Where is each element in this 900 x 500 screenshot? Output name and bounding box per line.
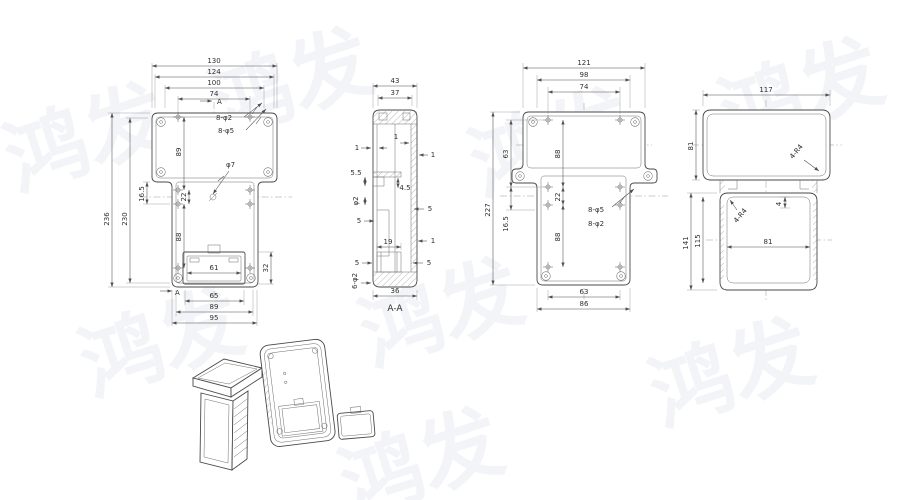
side-step-lines bbox=[720, 180, 817, 193]
dim-115: 115 bbox=[694, 234, 702, 247]
dim-100: 100 bbox=[207, 79, 220, 87]
dim-98: 98 bbox=[580, 71, 589, 79]
side-step-hatch-left bbox=[720, 180, 725, 192]
dim-16-5-back: 16.5 bbox=[502, 216, 510, 232]
side-upper-outline bbox=[703, 110, 830, 180]
dim-wall-1d: 1 bbox=[431, 237, 435, 245]
dim-63-bottom: 63 bbox=[580, 288, 589, 296]
dim-89-bottom: 89 bbox=[210, 303, 219, 311]
dim-37: 37 bbox=[391, 89, 400, 97]
dim-36: 36 bbox=[391, 287, 400, 295]
dim-4: 4 bbox=[775, 201, 783, 206]
side-view: 117 81 141 115 81 4 4-R4 4-R4 bbox=[682, 86, 842, 300]
dim-43: 43 bbox=[391, 77, 400, 85]
dim-89-vert: 89 bbox=[175, 148, 183, 157]
callout-phi7: φ7 bbox=[226, 161, 235, 169]
small-cover-iso bbox=[337, 405, 376, 439]
assembled-enclosure-iso bbox=[193, 359, 262, 470]
callout-8-phi2: 8-φ2 bbox=[216, 114, 232, 122]
dim-88b: 88 bbox=[554, 233, 562, 242]
dim-63-left: 63 bbox=[502, 150, 510, 159]
dim-6-phi2: 6-φ2 bbox=[351, 273, 359, 289]
dim-74-back: 74 bbox=[580, 83, 589, 91]
dim-74: 74 bbox=[210, 90, 219, 98]
section-right-wall-hatch bbox=[411, 124, 417, 272]
dim-230: 230 bbox=[121, 212, 129, 225]
section-bottom-hatch bbox=[373, 272, 417, 286]
front-outline bbox=[152, 113, 277, 287]
dim-81-inner: 81 bbox=[764, 238, 773, 246]
dim-4-5: 4.5 bbox=[399, 184, 410, 192]
dim-65: 65 bbox=[210, 292, 219, 300]
engineering-drawing: 鸿发 鸿发 鸿发 鸿发 鸿发 鸿发 鸿发 鸿发 bbox=[0, 0, 900, 500]
dim-86: 86 bbox=[580, 300, 589, 308]
callout-8-phi2-back: 8-φ2 bbox=[588, 220, 604, 228]
dim-5-5: 5.5 bbox=[350, 169, 361, 177]
dim-81-upper: 81 bbox=[687, 142, 695, 151]
dim-236: 236 bbox=[103, 212, 111, 226]
dim-16-5: 16.5 bbox=[138, 186, 146, 202]
watermark-text: 鸿发 bbox=[639, 303, 824, 444]
dim-wall-1b: 1 bbox=[394, 133, 398, 141]
side-rib-hatch-left bbox=[720, 202, 724, 280]
callout-8-phi5: 8-φ5 bbox=[218, 127, 234, 135]
watermark-text: 鸿发 bbox=[329, 393, 514, 500]
side-step-hatch-right bbox=[812, 180, 817, 192]
dim-130: 130 bbox=[207, 57, 220, 65]
dim-141: 141 bbox=[682, 236, 690, 249]
dim-117: 117 bbox=[759, 86, 772, 94]
dim-wall-1c: 1 bbox=[431, 151, 435, 159]
open-shell-iso bbox=[259, 338, 336, 447]
dim-5d: 5 bbox=[427, 259, 431, 267]
dim-19: 19 bbox=[384, 238, 393, 246]
dim-121: 121 bbox=[577, 59, 590, 67]
section-label-a-top: A bbox=[217, 98, 222, 106]
section-title: A-A bbox=[387, 304, 403, 314]
dim-95: 95 bbox=[210, 314, 219, 322]
section-label-a-bottom: A bbox=[175, 289, 180, 297]
dim-61: 61 bbox=[210, 264, 219, 272]
drawing-page: 鸿发 鸿发 鸿发 鸿发 鸿发 鸿发 鸿发 鸿发 bbox=[0, 0, 900, 500]
dim-22-back: 22 bbox=[554, 193, 562, 202]
dim-124: 124 bbox=[207, 68, 221, 76]
dim-88-vert: 88 bbox=[175, 233, 183, 242]
dim-5b: 5 bbox=[357, 217, 361, 225]
dim-88a: 88 bbox=[554, 150, 562, 159]
callout-8-phi5-back: 8-φ5 bbox=[588, 206, 604, 214]
dim-32: 32 bbox=[262, 264, 270, 273]
dim-5a: 5 bbox=[428, 205, 432, 213]
dim-5c: 5 bbox=[355, 259, 359, 267]
dim-wall-1a: 1 bbox=[355, 144, 359, 152]
dim-22-vert: 22 bbox=[180, 193, 188, 202]
dim-phi2: φ2 bbox=[352, 196, 360, 205]
dim-227: 227 bbox=[484, 203, 492, 216]
side-rib-hatch-right bbox=[813, 202, 817, 280]
